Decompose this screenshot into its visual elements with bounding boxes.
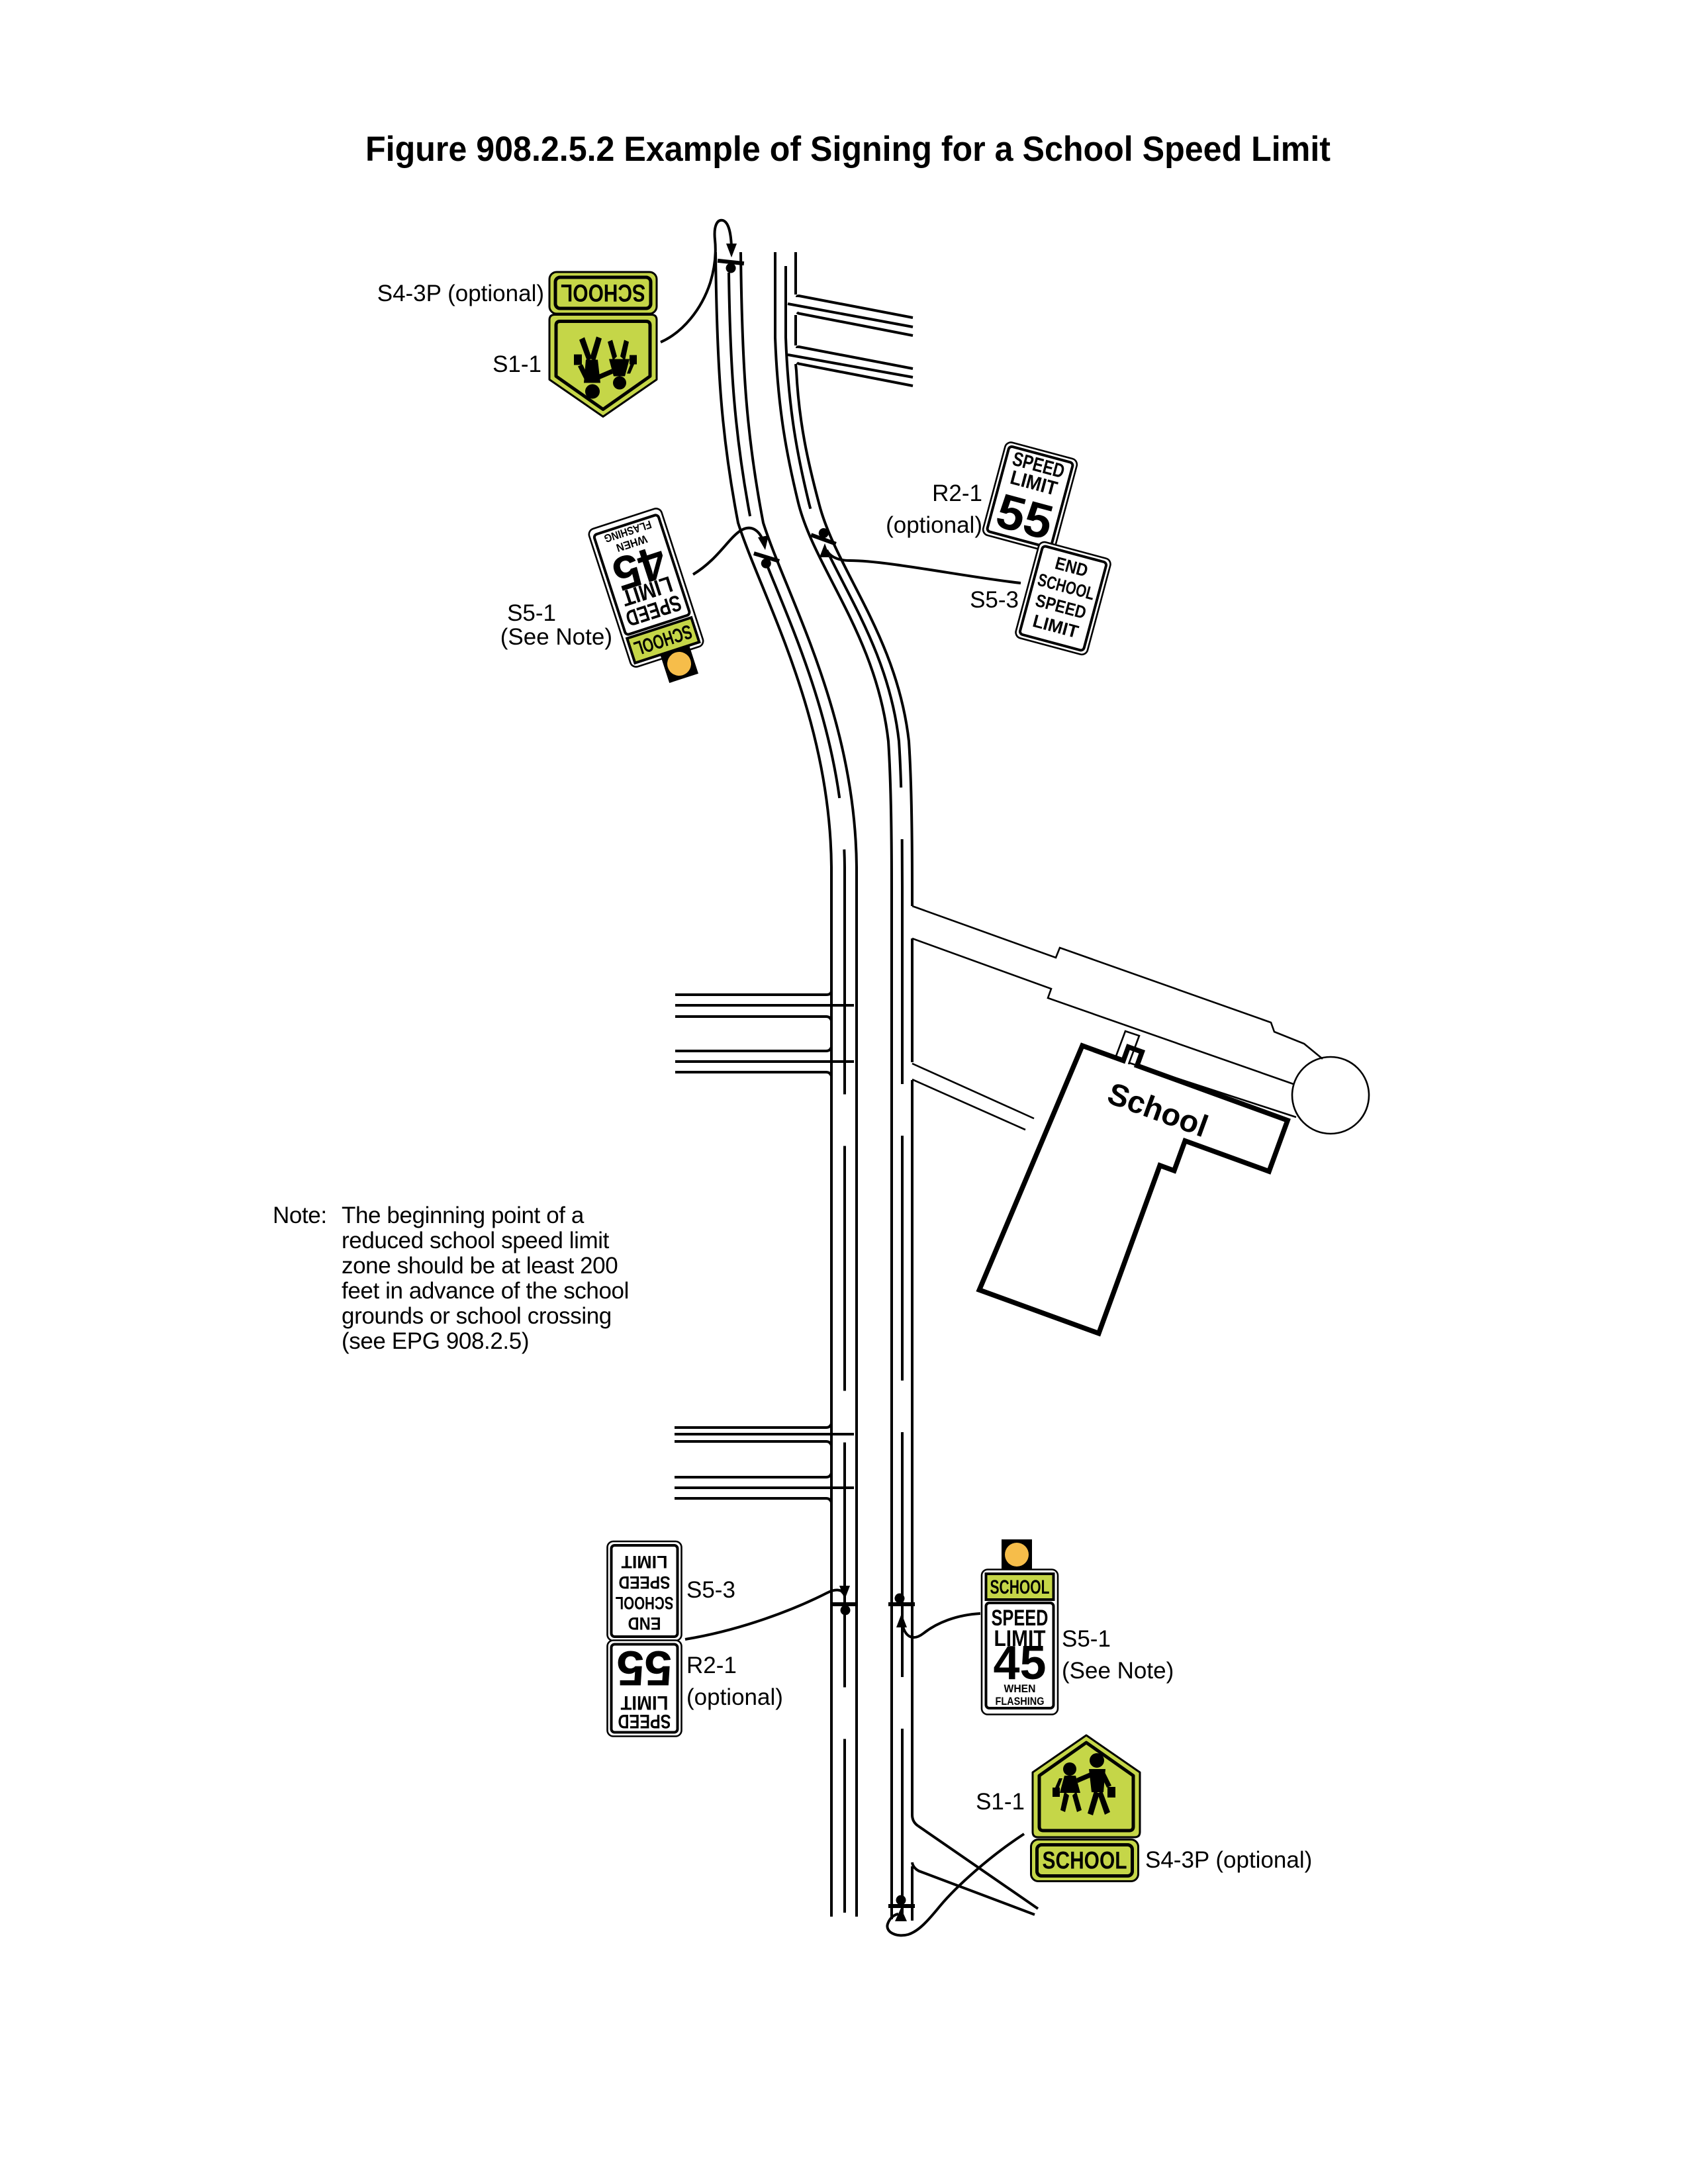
svg-text:The beginning point of a: The beginning point of a xyxy=(342,1203,585,1228)
svg-text:R2-1: R2-1 xyxy=(686,1653,737,1678)
svg-text:S5-3: S5-3 xyxy=(970,587,1019,613)
svg-text:R2-1: R2-1 xyxy=(932,480,982,506)
svg-text:(optional): (optional) xyxy=(886,512,982,538)
svg-text:(optional): (optional) xyxy=(686,1684,783,1710)
svg-text:S5-3: S5-3 xyxy=(686,1577,735,1603)
svg-text:S5-1: S5-1 xyxy=(507,600,556,626)
svg-text:zone should be at least 200: zone should be at least 200 xyxy=(342,1253,618,1279)
svg-text:grounds or school crossing: grounds or school crossing xyxy=(342,1303,612,1329)
svg-text:S5-1: S5-1 xyxy=(1062,1626,1111,1652)
svg-text:S4-3P (optional): S4-3P (optional) xyxy=(1145,1847,1312,1873)
svg-text:Figure 908.2.5.2 Example of Si: Figure 908.2.5.2 Example of Signing for … xyxy=(365,130,1331,169)
svg-text:S4-3P (optional): S4-3P (optional) xyxy=(377,281,544,306)
svg-text:Note:: Note: xyxy=(273,1203,327,1228)
svg-text:feet in advance of the school: feet in advance of the school xyxy=(342,1278,629,1304)
svg-text:reduced school speed limit: reduced school speed limit xyxy=(342,1228,610,1253)
svg-text:(See Note): (See Note) xyxy=(500,624,612,650)
svg-text:(see EPG 908.2.5): (see EPG 908.2.5) xyxy=(342,1328,529,1354)
svg-text:S1-1: S1-1 xyxy=(976,1789,1025,1815)
svg-text:S1-1: S1-1 xyxy=(492,351,541,377)
svg-text:(See Note): (See Note) xyxy=(1062,1658,1174,1684)
